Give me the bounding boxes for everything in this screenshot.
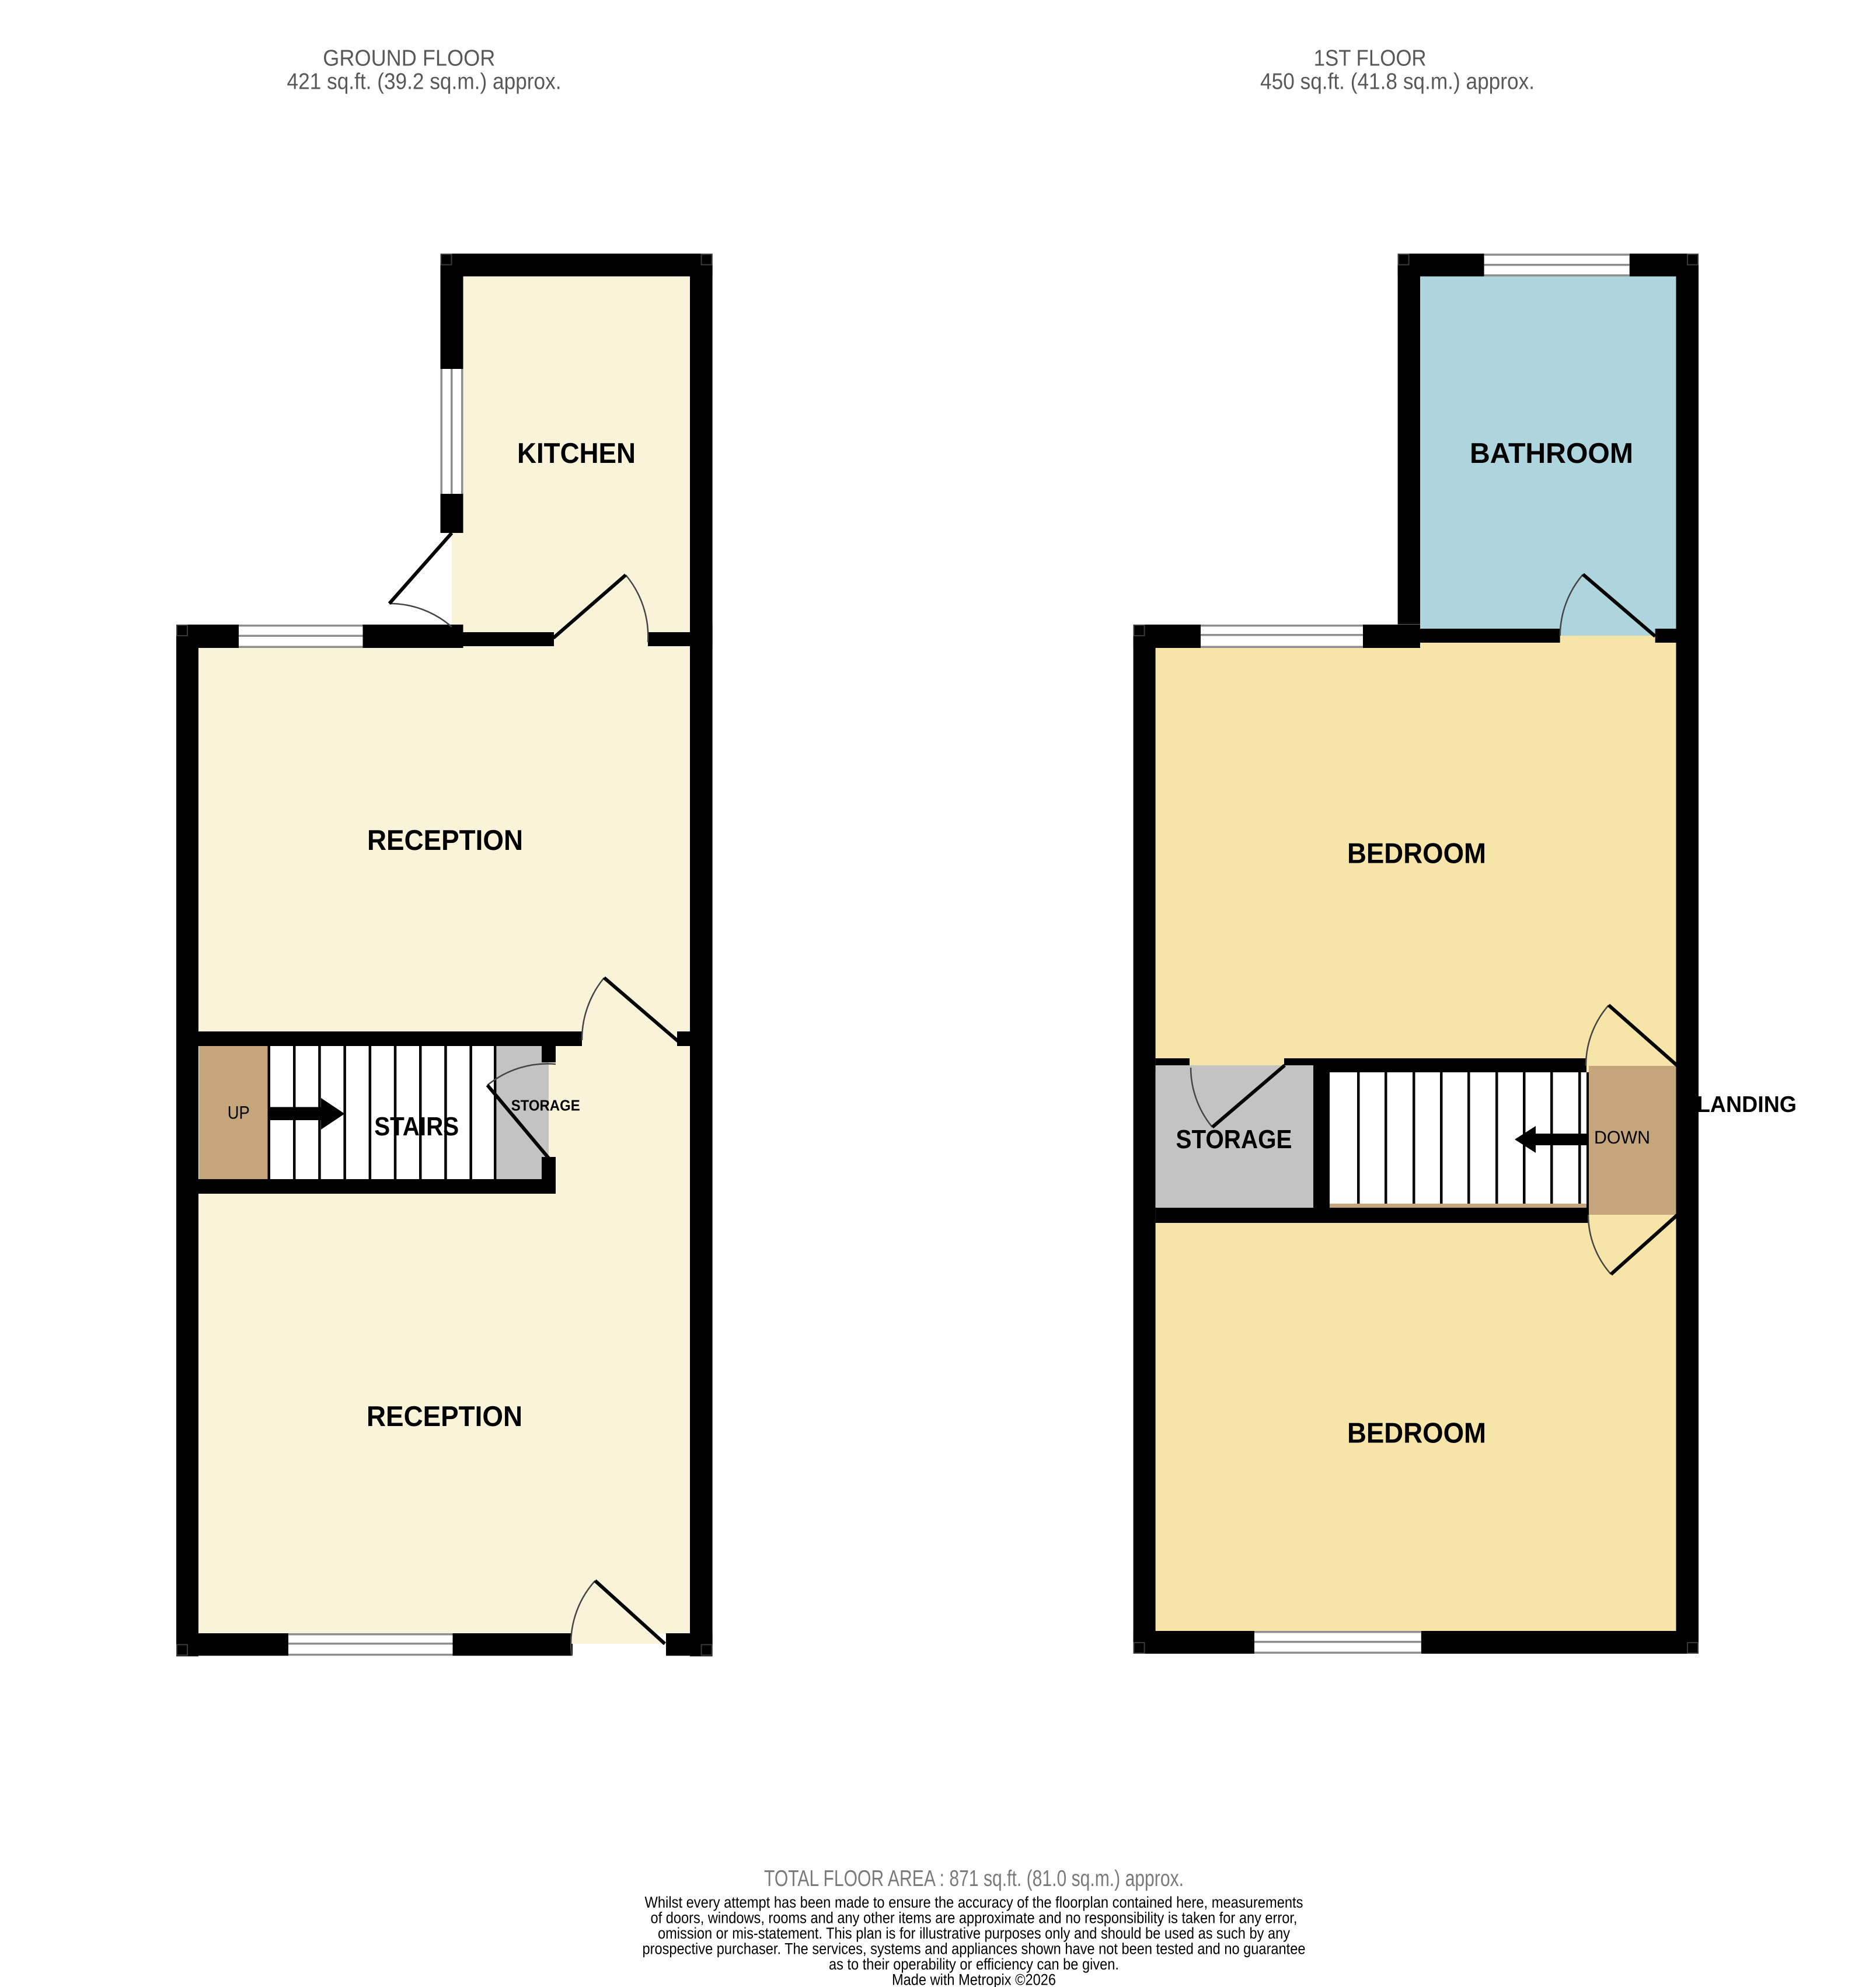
svg-text:421 sq.ft. (39.2 sq.m.) approx: 421 sq.ft. (39.2 sq.m.) approx. bbox=[287, 69, 562, 95]
svg-text:KITCHEN: KITCHEN bbox=[517, 438, 636, 469]
svg-text:of doors, windows, rooms and a: of doors, windows, rooms and any other i… bbox=[651, 1909, 1298, 1927]
svg-text:BATHROOM: BATHROOM bbox=[1470, 438, 1633, 469]
svg-text:450 sq.ft. (41.8 sq.m.) approx: 450 sq.ft. (41.8 sq.m.) approx. bbox=[1260, 69, 1535, 95]
svg-text:omission or mis-statement. Thi: omission or mis-statement. This plan is … bbox=[658, 1925, 1290, 1942]
svg-text:LANDING: LANDING bbox=[1697, 1092, 1797, 1117]
svg-text:Made with Metropix ©2026: Made with Metropix ©2026 bbox=[892, 1971, 1056, 1987]
svg-text:1ST FLOOR: 1ST FLOOR bbox=[1314, 46, 1427, 71]
svg-text:as to their operability or eff: as to their operability or efficiency ca… bbox=[829, 1955, 1119, 1973]
svg-text:Whilst every attempt has been: Whilst every attempt has been made to en… bbox=[645, 1894, 1303, 1911]
svg-text:GROUND FLOOR: GROUND FLOOR bbox=[323, 46, 495, 71]
svg-text:STAIRS: STAIRS bbox=[374, 1111, 459, 1141]
svg-text:BEDROOM: BEDROOM bbox=[1347, 838, 1486, 870]
svg-text:UP: UP bbox=[228, 1102, 250, 1123]
svg-text:RECEPTION: RECEPTION bbox=[367, 825, 523, 856]
svg-text:RECEPTION: RECEPTION bbox=[367, 1401, 522, 1432]
svg-text:STORAGE: STORAGE bbox=[511, 1097, 580, 1114]
svg-text:prospective purchaser. The ser: prospective purchaser. The services, sys… bbox=[643, 1940, 1306, 1958]
svg-text:BEDROOM: BEDROOM bbox=[1347, 1418, 1486, 1449]
svg-text:TOTAL FLOOR AREA : 871 sq.ft.: TOTAL FLOOR AREA : 871 sq.ft. (81.0 sq.m… bbox=[764, 1866, 1184, 1891]
svg-text:DOWN: DOWN bbox=[1594, 1127, 1650, 1148]
svg-text:STORAGE: STORAGE bbox=[1176, 1124, 1292, 1154]
